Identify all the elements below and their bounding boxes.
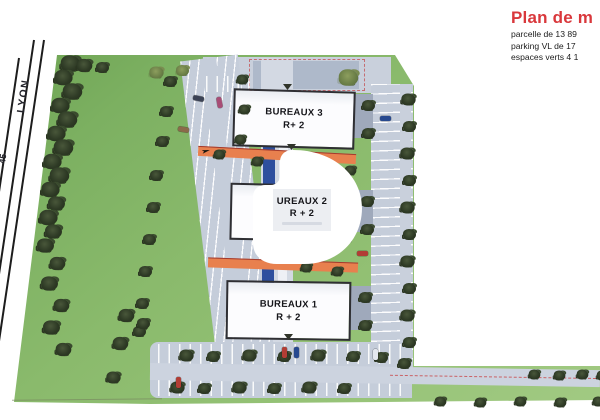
- red-dashed-boundary: [249, 59, 365, 91]
- building-label: BUREAUX 1: [260, 298, 318, 310]
- building-label: BUREAUX 3: [265, 106, 323, 119]
- scanned-site-plan-page: LYON 45 BUREAUX 3 R+ 2 BUREAUX 1 R + 2: [0, 0, 600, 420]
- service-pad: [352, 190, 373, 232]
- building-floors-label: R+ 2: [283, 120, 305, 132]
- parking-aisle: [400, 84, 411, 370]
- road-centerline: [390, 375, 596, 379]
- building-floors-label: R + 2: [290, 208, 314, 219]
- legend: Plan de m parcelle de 13 89 parking VL d…: [511, 8, 600, 63]
- building-bureaux-2-label-window: UREAUX 2 R + 2: [273, 189, 331, 231]
- building-bureaux-1: BUREAUX 1 R + 2: [226, 280, 352, 341]
- legend-line-espaces-verts: espaces verts 4 1: [511, 52, 600, 63]
- plan-title: Plan de m: [511, 8, 600, 28]
- legend-line-parcelle: parcelle de 13 89: [511, 29, 600, 40]
- legend-line-parking: parking VL de 17: [511, 41, 600, 52]
- illegible-scan-text: [282, 222, 322, 225]
- service-pad: [350, 286, 371, 330]
- road-label-lyon: LYON: [15, 78, 32, 114]
- building-bureaux-3: BUREAUX 3 R+ 2: [232, 88, 356, 149]
- road-label-number: 45: [0, 153, 8, 164]
- east-parking-strip: [371, 84, 413, 370]
- building-floors-label: R + 2: [276, 311, 301, 322]
- building-label: UREAUX 2: [277, 196, 327, 207]
- parking-stall-lines: [158, 344, 408, 364]
